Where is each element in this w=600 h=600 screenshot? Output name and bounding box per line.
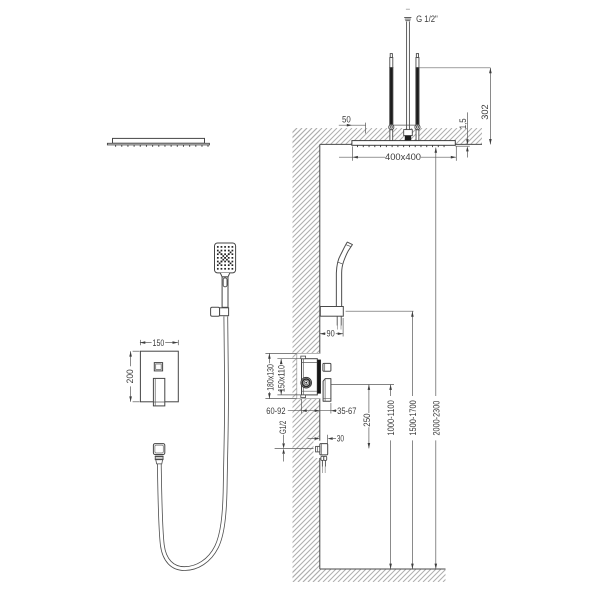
svg-text:35-67: 35-67 [337, 406, 356, 416]
svg-text:50: 50 [342, 115, 351, 125]
svg-text:150x110: 150x110 [277, 365, 287, 392]
svg-text:180x130: 180x130 [265, 364, 275, 391]
svg-text:302: 302 [480, 104, 490, 119]
svg-text:200: 200 [125, 369, 135, 383]
svg-text:G 1/2": G 1/2" [416, 14, 438, 24]
svg-text:400x400: 400x400 [385, 152, 421, 162]
svg-text:1,5: 1,5 [458, 118, 468, 129]
svg-text:250: 250 [362, 414, 372, 427]
svg-text:1500-1700: 1500-1700 [408, 400, 418, 435]
svg-text:1000-1100: 1000-1100 [386, 400, 396, 435]
svg-text:90: 90 [327, 328, 335, 338]
svg-text:150: 150 [153, 338, 165, 348]
svg-text:60-92: 60-92 [266, 406, 285, 416]
svg-text:2000-2300: 2000-2300 [431, 401, 441, 436]
svg-text:30: 30 [337, 434, 344, 444]
svg-text:G1/2: G1/2 [278, 421, 288, 434]
